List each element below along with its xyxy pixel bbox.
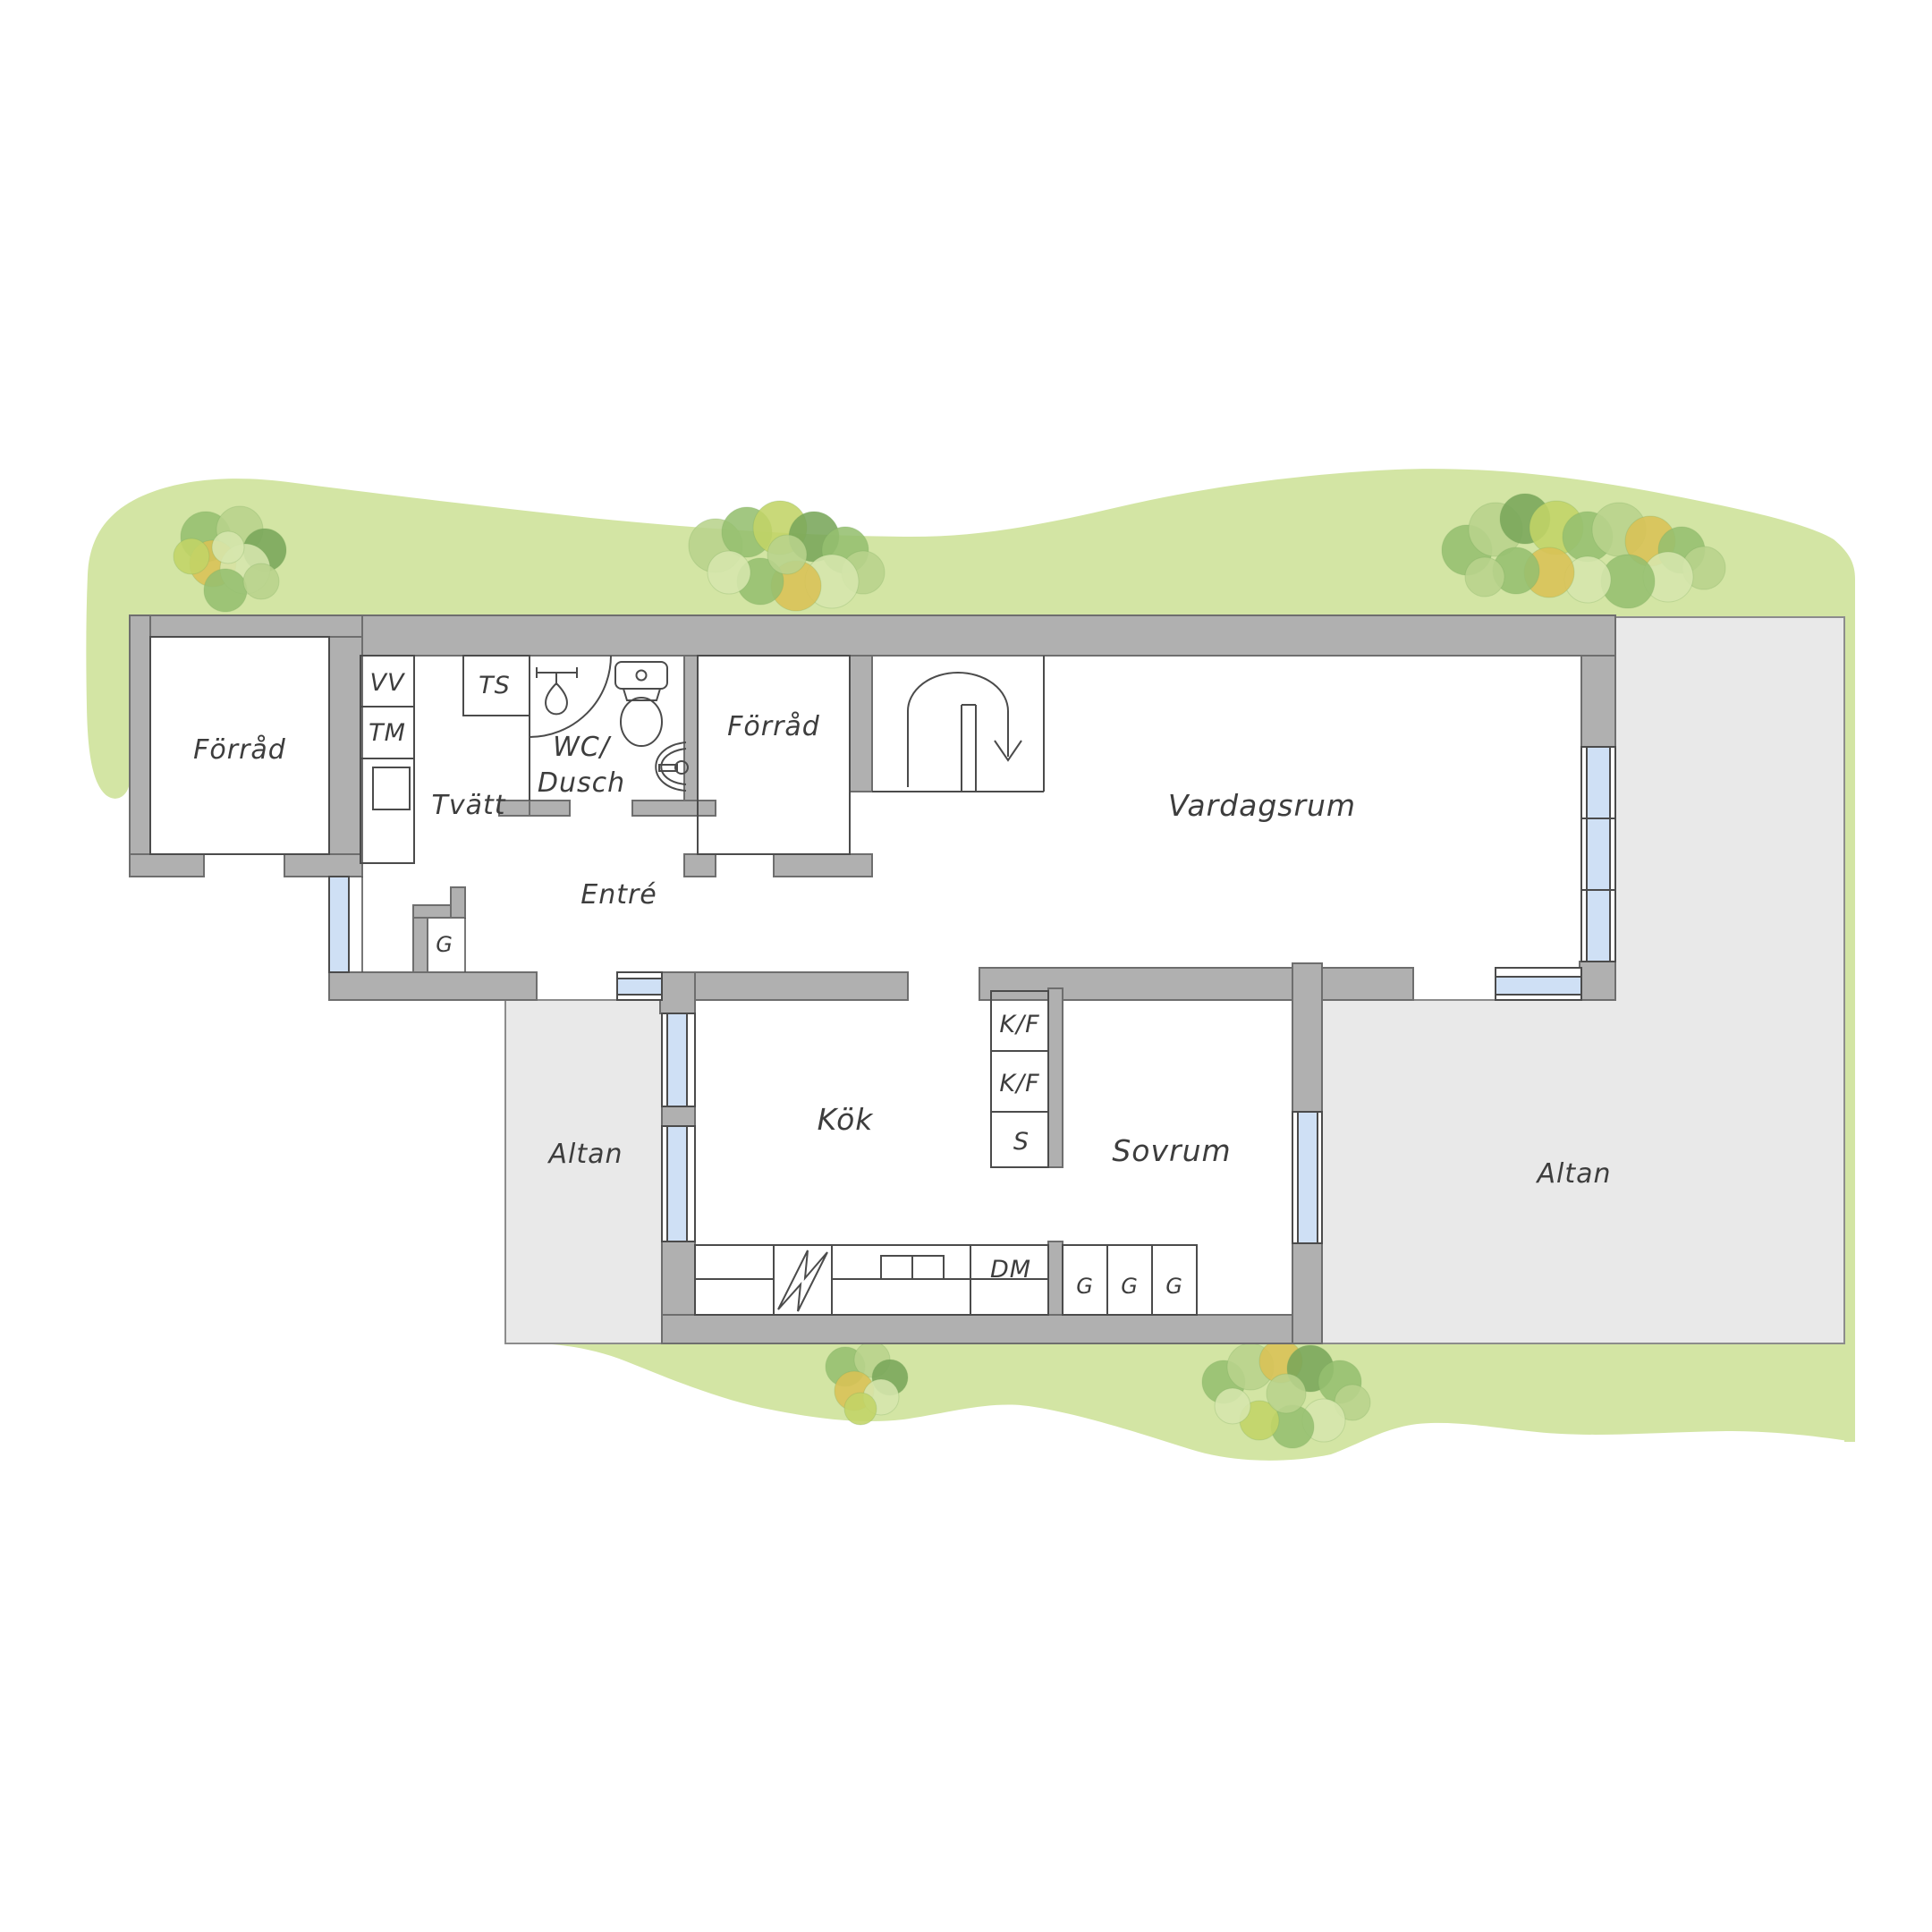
- window-living-east: [1581, 747, 1615, 962]
- fixture-label-wardrobe-2: G: [1121, 1274, 1139, 1299]
- fixture-label-pantry: S: [1013, 1128, 1030, 1156]
- patio-left-area: [505, 1000, 662, 1343]
- wall-bedroom-west-pier: [1048, 1241, 1063, 1315]
- wall-wc-bottom-right: [632, 801, 716, 816]
- wall-annex-west: [130, 615, 150, 877]
- room-label-patio-left: Altan: [547, 1139, 623, 1170]
- wall-storage2-bottom-left: [684, 854, 716, 877]
- wall-annex-bottom-right: [284, 854, 362, 877]
- room-label-wc-line1: WC/: [553, 732, 612, 763]
- wall-living-south-segment: [1322, 968, 1413, 1000]
- wall-bedroom-west: [1048, 988, 1063, 1167]
- fixture-label-vv: VV: [370, 669, 406, 697]
- room-label-entrance: Entré: [580, 879, 657, 911]
- wall-annex-top: [130, 615, 362, 637]
- fixture-label-wardrobe-1: G: [1076, 1274, 1094, 1299]
- wall-living-east-top: [1581, 656, 1615, 747]
- room-label-bedroom: Sovrum: [1112, 1133, 1231, 1168]
- fixture-label-ts: TS: [479, 672, 511, 699]
- fixture-label-wardrobe-3: G: [1165, 1274, 1183, 1299]
- wall-stair-west: [850, 656, 872, 792]
- wall-annex-east: [329, 637, 362, 854]
- wall-annex-bottom-left: [130, 854, 204, 877]
- fixture-label-dishwasher: DM: [990, 1256, 1031, 1284]
- room-label-patio-right: Altan: [1535, 1158, 1611, 1190]
- floor-plan-page: Förråd VV TM TS Tvätt WC/ Dusch Förråd E…: [0, 0, 1932, 1932]
- wall-closet-tab: [451, 887, 465, 918]
- room-label-annex-storage: Förråd: [193, 734, 286, 766]
- wall-bedroom-north: [979, 968, 1292, 1000]
- wall-kitchen-nw-corner: [660, 972, 695, 1013]
- window-bedroom-east: [1292, 1112, 1322, 1243]
- fixture-label-kf2: K/F: [999, 1070, 1039, 1097]
- window-kitchen-west-2: [662, 1126, 695, 1241]
- wall-south-main: [662, 1315, 1322, 1343]
- room-label-kitchen: Kök: [818, 1102, 875, 1137]
- wall-wc-east: [684, 656, 698, 816]
- wall-kitchen-north: [695, 972, 908, 1000]
- wall-top-main: [349, 615, 1615, 656]
- room-label-laundry: Tvätt: [432, 790, 506, 821]
- wall-bedroom-east-upper: [1292, 963, 1322, 1112]
- room-label-wc-line2: Dusch: [538, 767, 625, 799]
- window-front-door-side: [617, 972, 662, 1000]
- wall-bedroom-east-pier: [1292, 1243, 1322, 1343]
- lawn-bottom-band: [552, 1344, 1855, 1461]
- room-label-inner-storage: Förråd: [727, 711, 820, 742]
- floor-plan-drawing: Förråd VV TM TS Tvätt WC/ Dusch Förråd E…: [0, 0, 1932, 1932]
- wall-living-se-corner: [1580, 962, 1615, 1000]
- window-living-south: [1496, 968, 1581, 1000]
- fixture-label-kf1: K/F: [999, 1011, 1039, 1038]
- room-label-living-room: Vardagsrum: [1168, 788, 1356, 823]
- fixture-label-entry-wardrobe: G: [436, 932, 453, 957]
- wall-kitchen-west-pier: [662, 1106, 695, 1126]
- fixture-label-tm: TM: [369, 719, 406, 747]
- wall-wc-bottom-left: [530, 801, 570, 816]
- wall-storage2-bottom-right: [774, 854, 872, 877]
- window-kitchen-west-1: [662, 1013, 695, 1106]
- wall-south-entre: [329, 972, 537, 1000]
